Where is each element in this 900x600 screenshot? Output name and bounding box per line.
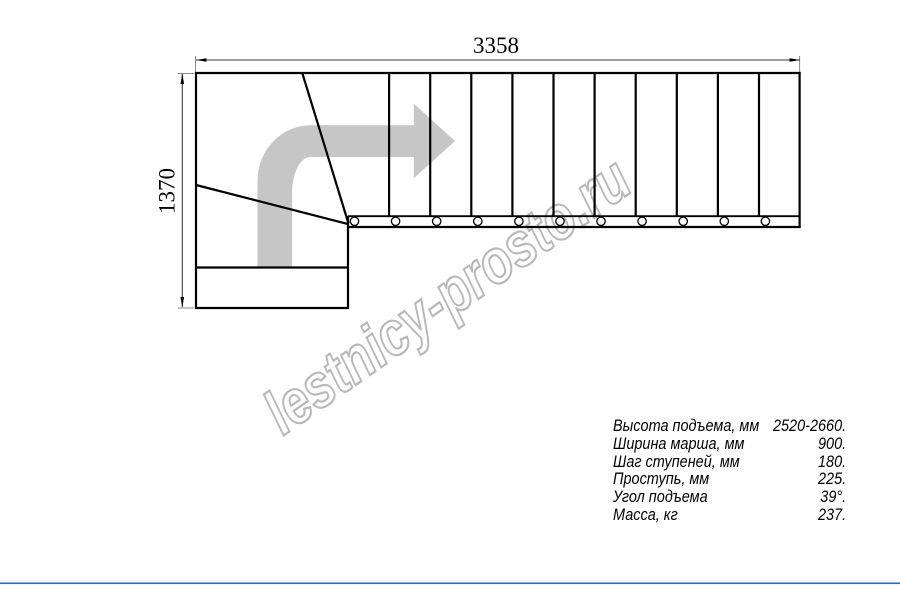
svg-text:3358: 3358 bbox=[473, 33, 519, 58]
svg-text:1370: 1370 bbox=[155, 168, 180, 214]
svg-text:lestnicy-prosto.ru: lestnicy-prosto.ru bbox=[251, 144, 643, 447]
